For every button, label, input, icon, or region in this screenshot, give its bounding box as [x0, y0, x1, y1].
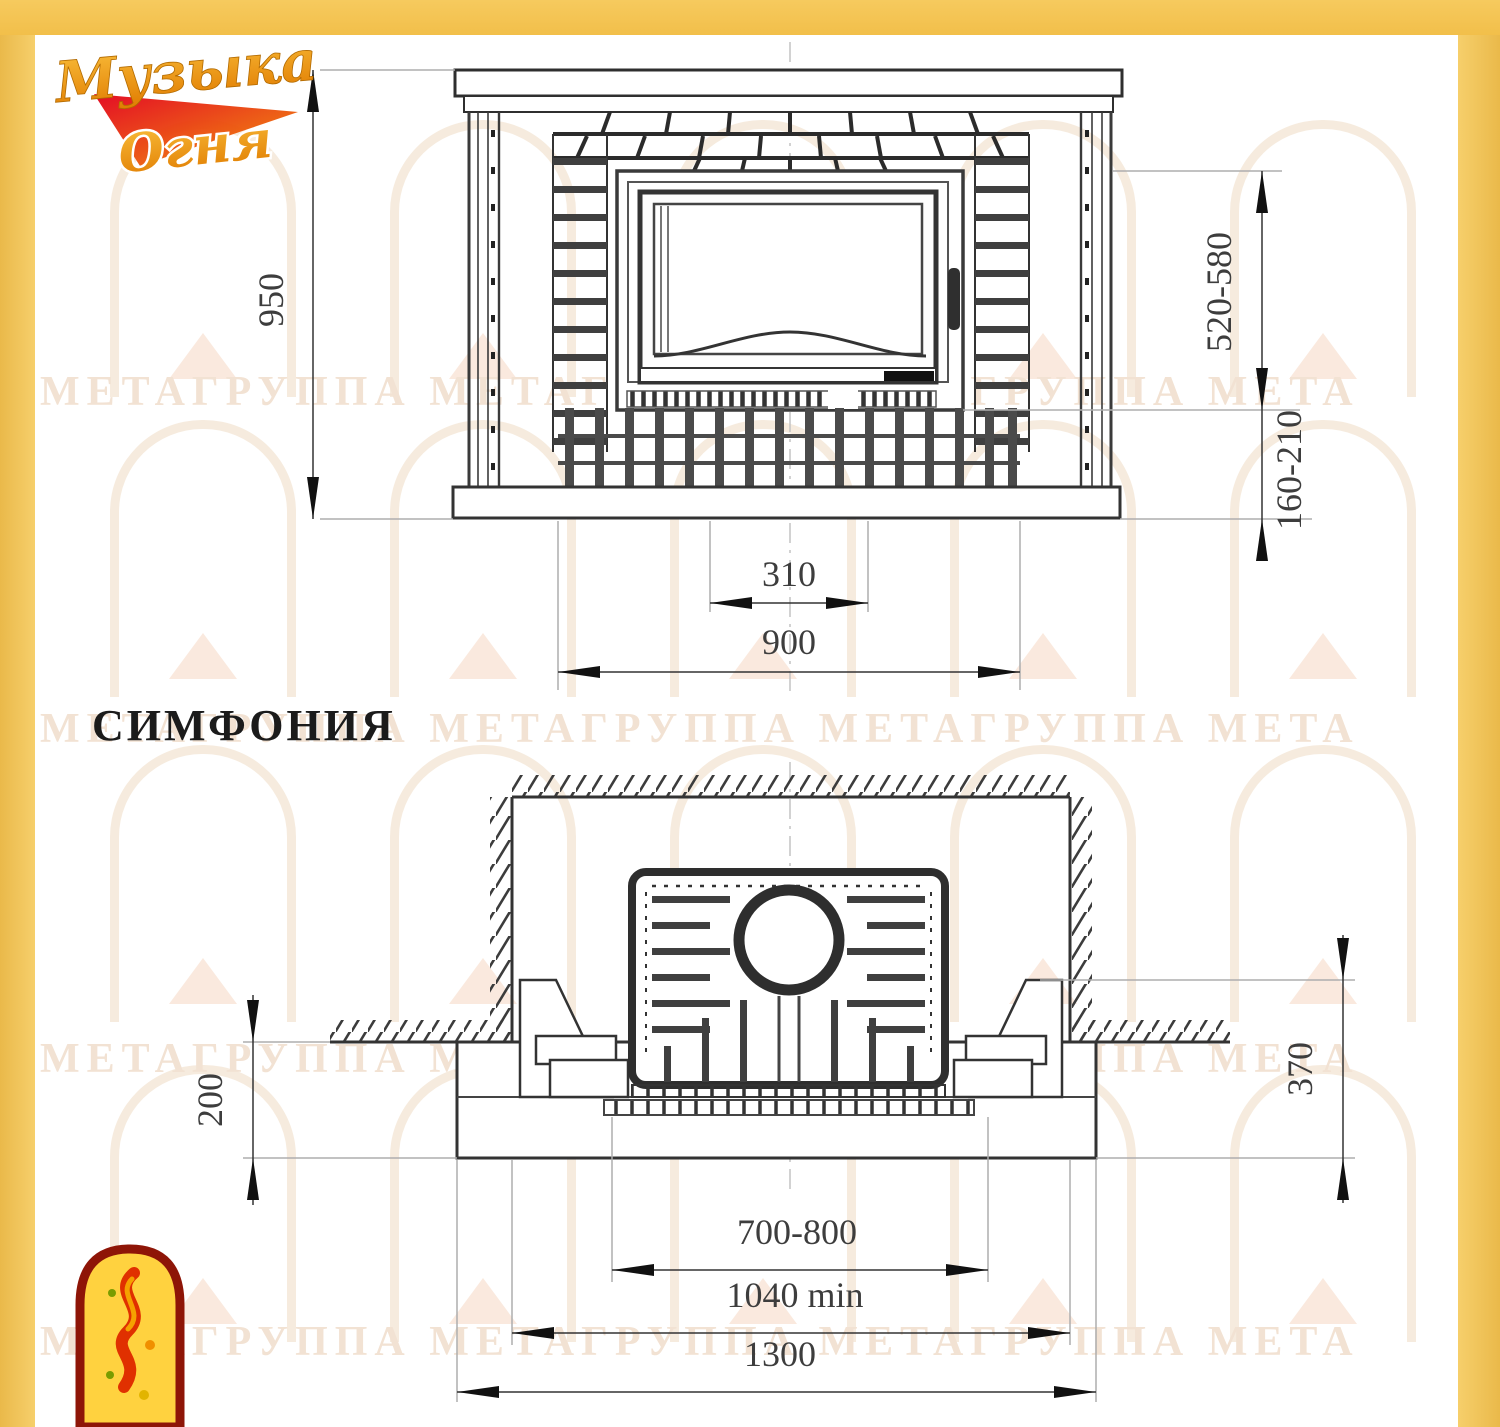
dim-hearth-160-210: 160-210	[1269, 410, 1309, 530]
dim-offset-370: 370	[1280, 1042, 1320, 1096]
base-lattice	[558, 408, 1020, 487]
dim-platform-1300: 1300	[744, 1334, 816, 1374]
frame-right	[1458, 35, 1500, 1427]
right-pilaster	[1081, 112, 1111, 487]
frame-left	[0, 35, 35, 1427]
dim-firebox-520-580: 520-580	[1199, 232, 1239, 352]
flue-outlet	[739, 890, 839, 990]
dim-niche-1040min: 1040 min	[726, 1275, 863, 1315]
firebox-insert-plan	[604, 872, 974, 1115]
plan-view: 200 370 700-800 1040 min 1300	[190, 762, 1355, 1402]
dim-body-900: 900	[762, 622, 816, 662]
dim-vent-310: 310	[762, 554, 816, 594]
left-brick-column	[553, 134, 607, 452]
dim-offset-200: 200	[190, 1073, 230, 1127]
front-elevation: 950 520-580 160-210 310 900	[251, 42, 1312, 695]
brand-logo: Музыка Огня	[22, 14, 322, 204]
base-plinth	[453, 487, 1120, 518]
vent-grille	[627, 389, 936, 409]
left-pilaster	[469, 112, 499, 487]
brick-frieze	[553, 112, 1029, 171]
right-brick-column	[975, 134, 1029, 452]
door-handle	[948, 268, 960, 330]
dim-height-950: 950	[251, 273, 291, 327]
dim-insert-700-800: 700-800	[737, 1212, 857, 1252]
model-title: СИМФОНИЯ	[92, 700, 396, 751]
page: { "colors": { "frame_yellow": "#f4c557",…	[0, 0, 1500, 1427]
flame-emblem	[70, 1235, 192, 1427]
logo-word-1: Музыка	[51, 27, 320, 116]
firebox-door	[617, 171, 963, 410]
